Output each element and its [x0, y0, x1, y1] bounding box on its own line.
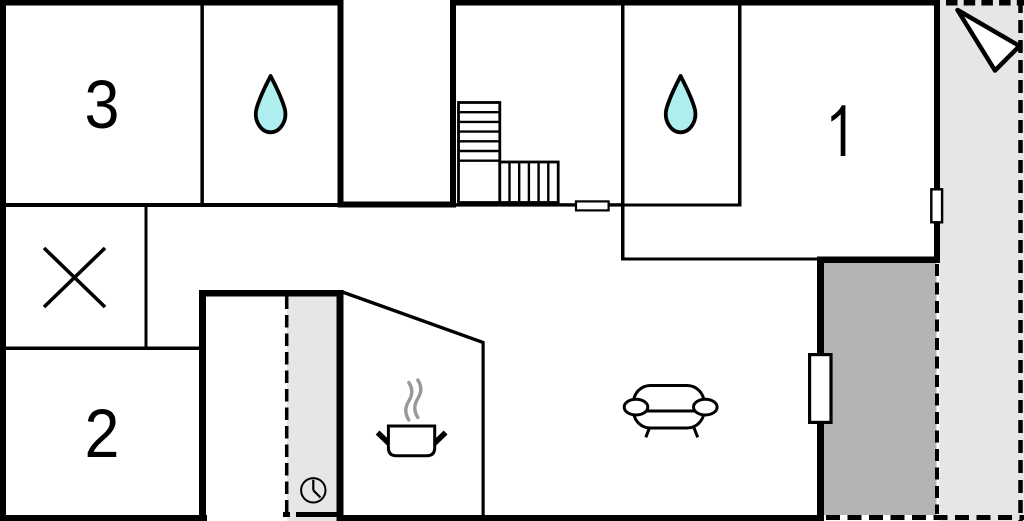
- svg-text:3: 3: [85, 65, 120, 142]
- svg-text:2: 2: [85, 394, 120, 471]
